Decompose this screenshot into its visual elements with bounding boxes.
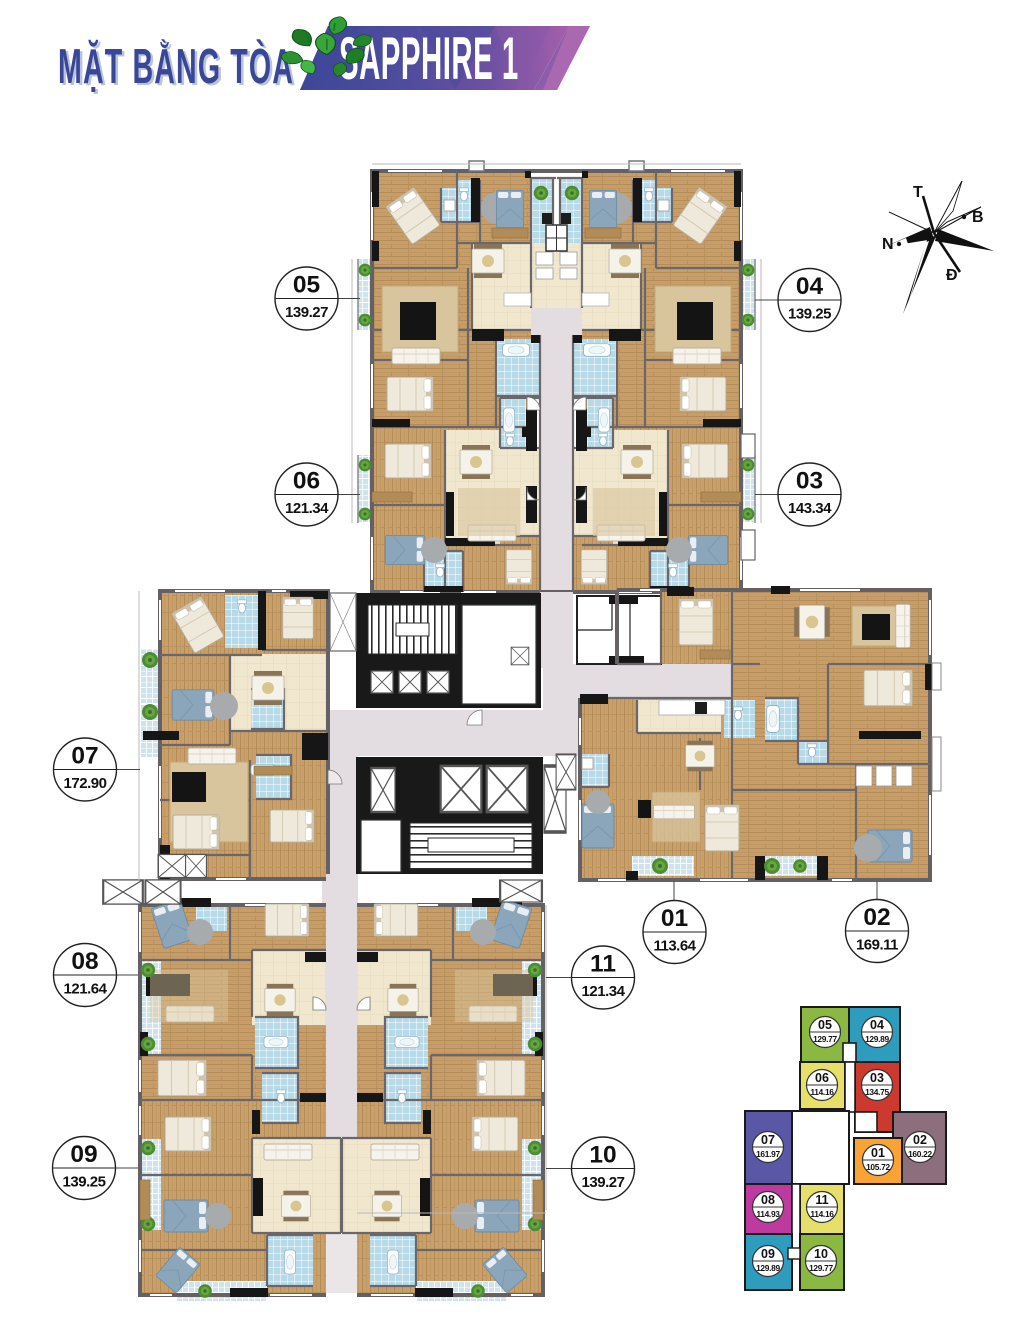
svg-text:139.27: 139.27 — [285, 304, 328, 321]
svg-text:134.75: 134.75 — [865, 1087, 889, 1097]
svg-text:06: 06 — [815, 1071, 829, 1085]
svg-text:05: 05 — [293, 272, 320, 299]
svg-text:01: 01 — [661, 905, 688, 932]
svg-text:10: 10 — [814, 1247, 828, 1261]
svg-text:113.64: 113.64 — [653, 938, 696, 955]
svg-text:T: T — [913, 184, 923, 201]
svg-text:129.89: 129.89 — [756, 1263, 780, 1273]
svg-text:105.72: 105.72 — [866, 1162, 890, 1172]
svg-text:161.97: 161.97 — [756, 1149, 780, 1159]
svg-text:07: 07 — [71, 743, 98, 770]
svg-text:160.22: 160.22 — [908, 1149, 932, 1159]
svg-text:Đ: Đ — [946, 267, 958, 284]
svg-text:11: 11 — [815, 1193, 828, 1207]
svg-text:08: 08 — [761, 1193, 775, 1207]
svg-text:139.25: 139.25 — [788, 306, 831, 323]
svg-text:01: 01 — [871, 1146, 885, 1160]
svg-text:02: 02 — [863, 904, 890, 931]
svg-text:11: 11 — [590, 951, 616, 978]
svg-text:02: 02 — [913, 1133, 927, 1147]
svg-text:121.34: 121.34 — [582, 983, 626, 1000]
svg-text:08: 08 — [71, 948, 98, 975]
svg-text:129.89: 129.89 — [865, 1034, 889, 1044]
svg-text:03: 03 — [870, 1071, 884, 1085]
svg-text:114.93: 114.93 — [756, 1209, 780, 1219]
svg-text:04: 04 — [796, 273, 824, 300]
svg-text:04: 04 — [870, 1018, 884, 1032]
svg-text:N: N — [882, 236, 894, 253]
svg-text:114.16: 114.16 — [810, 1209, 834, 1219]
svg-text:129.77: 129.77 — [813, 1034, 837, 1044]
svg-text:139.25: 139.25 — [63, 1174, 106, 1191]
svg-text:05: 05 — [818, 1018, 832, 1032]
svg-text:121.64: 121.64 — [64, 981, 108, 998]
svg-text:143.34: 143.34 — [788, 500, 832, 517]
svg-text:121.34: 121.34 — [285, 500, 329, 517]
svg-text:B: B — [972, 209, 984, 226]
svg-text:09: 09 — [70, 1141, 97, 1168]
svg-text:07: 07 — [761, 1133, 775, 1147]
svg-text:10: 10 — [589, 1142, 616, 1169]
svg-text:114.16: 114.16 — [810, 1087, 834, 1097]
svg-text:172.90: 172.90 — [64, 775, 107, 792]
svg-text:09: 09 — [761, 1247, 775, 1261]
svg-text:03: 03 — [796, 468, 823, 495]
svg-text:169.11: 169.11 — [856, 937, 898, 954]
svg-text:06: 06 — [293, 468, 320, 495]
svg-text:139.27: 139.27 — [582, 1174, 625, 1191]
svg-text:129.77: 129.77 — [809, 1263, 833, 1273]
svg-text:MẶT BẰNG TÒA: MẶT BẰNG TÒA — [58, 38, 294, 94]
